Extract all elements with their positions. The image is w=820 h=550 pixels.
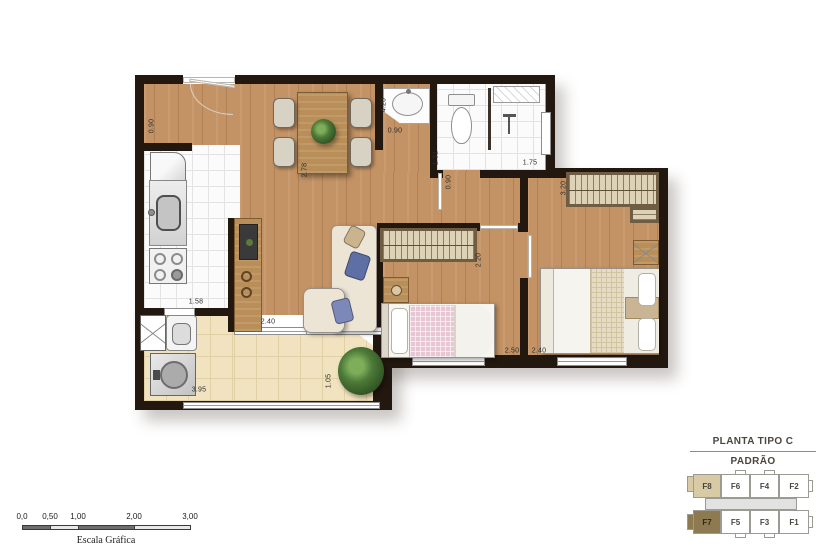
wall-bedroom2-left xyxy=(520,278,528,355)
keyplan-tab xyxy=(808,516,813,528)
window-glass-line xyxy=(184,405,379,406)
building-key-plan: F8 F6 F4 F2 F7 F5 F3 F1 xyxy=(691,474,815,538)
wall-top xyxy=(235,75,555,84)
dim-wardrobe-length: 3.20 xyxy=(561,181,568,195)
bedroom2-wardrobe xyxy=(566,172,659,207)
dim-lavatory-width: 0.90 xyxy=(388,128,402,135)
wall-shower-divider xyxy=(488,88,491,150)
dim-living-width: 2.40 xyxy=(261,319,275,326)
bed-pillow xyxy=(391,308,408,354)
burner-icon xyxy=(154,253,166,265)
dim-balcony-depth: 1.05 xyxy=(326,374,333,388)
dim-entry-width: 0.90 xyxy=(149,119,156,133)
beige-blanket xyxy=(590,269,626,353)
wall-lavatory-left xyxy=(375,84,383,150)
tank-basin xyxy=(172,323,191,345)
bedroom1-window xyxy=(412,357,485,366)
keyplan-tab xyxy=(687,476,694,492)
dim-bathroom-width: 1.31 xyxy=(433,151,440,165)
keyplan-tab xyxy=(764,533,775,538)
service-shaft xyxy=(140,315,166,351)
dim-hall-width: 0.90 xyxy=(446,175,453,189)
laundry-tank-icon xyxy=(166,315,197,351)
bed-duvet xyxy=(454,305,494,357)
scale-tick: 2,00 xyxy=(126,512,142,521)
shower-niche xyxy=(493,86,540,103)
wall-corner xyxy=(518,223,528,232)
unit-f4: F4 xyxy=(750,474,779,498)
washer-panel xyxy=(153,370,160,380)
keyplan-tab xyxy=(735,533,746,538)
bedroom2-wardrobe-extension xyxy=(630,207,659,223)
bedroom1-nightstand xyxy=(383,277,409,303)
wall-right xyxy=(659,168,668,368)
bed-pillow xyxy=(638,318,656,351)
scale-tick: 1,00 xyxy=(70,512,86,521)
double-bed xyxy=(540,268,658,354)
pink-blanket xyxy=(409,305,455,357)
dining-chair xyxy=(273,98,295,128)
dim-kitchen-depth: 2.78 xyxy=(302,163,309,177)
bed-duvet xyxy=(554,269,590,353)
legend-divider xyxy=(690,451,816,452)
bed-foot-fold xyxy=(541,269,554,353)
unit-f2: F2 xyxy=(779,474,809,498)
window-glass-line xyxy=(558,361,626,362)
shower-pipe xyxy=(508,114,510,134)
scale-segment xyxy=(22,525,51,530)
toilet-icon xyxy=(451,107,472,144)
bed-pillow xyxy=(638,273,656,306)
unit-f1: F1 xyxy=(779,510,809,534)
plan-type-title: PLANTA TIPO C xyxy=(688,436,818,447)
window-glass-line xyxy=(413,361,484,362)
dim-bedroom1-width: 2.50 xyxy=(505,348,519,355)
wall-left xyxy=(135,75,144,410)
wall-bathroom-bottom xyxy=(480,170,555,178)
toilet-tank xyxy=(448,94,475,106)
table-plant-icon xyxy=(311,119,336,144)
keyplan-tab xyxy=(764,470,775,475)
tv-stand xyxy=(633,240,659,265)
lamp-icon xyxy=(391,285,402,296)
scale-segment xyxy=(134,525,191,530)
unit-f5: F5 xyxy=(721,510,750,534)
keyplan-tab xyxy=(687,514,694,530)
bathroom-door-leaf xyxy=(438,173,442,210)
dim-kitchen-width: 1.58 xyxy=(189,299,203,306)
kitchen-sink-basin xyxy=(156,195,181,231)
dim-shower-width: 1.75 xyxy=(523,160,537,167)
faucet-icon xyxy=(148,209,155,216)
scale-tick: 0,0 xyxy=(16,512,27,521)
bedroom1-door-leaf xyxy=(480,225,518,229)
bathroom-vent-window xyxy=(541,112,551,155)
dim-bedroom2-width: 2.40 xyxy=(532,348,546,355)
unit-f8: F8 xyxy=(693,474,721,498)
apartment-floorplan: 0.90 2.78 4.20 0.90 1.31 1.75 0.90 3.20 … xyxy=(135,75,668,410)
plan-standard-subtitle: PADRÃO xyxy=(688,456,818,467)
wall-top xyxy=(135,75,183,84)
keyplan-tab xyxy=(735,470,746,475)
scale-tick: 0,50 xyxy=(42,512,58,521)
dim-dining-depth: 4.20 xyxy=(381,98,388,112)
legend-panel: PLANTA TIPO C PADRÃO F8 F6 F4 F2 F7 F5 F… xyxy=(688,436,818,538)
cooktop-burner-icon xyxy=(241,287,252,298)
burner-icon xyxy=(171,269,183,281)
scale-segment xyxy=(50,525,79,530)
wall-bedroom2-left xyxy=(520,178,528,223)
cooktop-burner-icon xyxy=(241,271,252,282)
countertop-appliance xyxy=(239,224,258,260)
kitchen-sink-counter xyxy=(149,180,187,246)
balcony-window xyxy=(183,402,380,409)
unit-f7: F7 xyxy=(693,510,721,534)
dim-balcony-width: 3.95 xyxy=(192,387,206,394)
dim-bedroom1-wardrobe: 2.20 xyxy=(476,253,483,267)
keyplan-tab xyxy=(808,480,813,492)
bedroom2-window xyxy=(557,357,627,366)
keyplan-corridor xyxy=(705,498,797,510)
stove-icon xyxy=(149,248,187,284)
bed-headboard xyxy=(382,304,389,357)
dining-chair xyxy=(273,137,295,167)
scale-caption: Escala Gráfica xyxy=(22,535,190,546)
dining-chair xyxy=(350,137,372,167)
washer-drum xyxy=(160,361,188,389)
balcony-plant-icon xyxy=(338,347,384,395)
dining-chair xyxy=(350,98,372,128)
bedroom1-wardrobe xyxy=(380,228,477,262)
unit-f3: F3 xyxy=(750,510,779,534)
burner-icon xyxy=(154,269,166,281)
floorplan-page: { "plan": { "dimensions": [ {"id": "entr… xyxy=(0,0,820,550)
single-bed xyxy=(381,303,495,358)
knob-icon xyxy=(246,239,253,246)
kitchen-peninsula-counter xyxy=(234,218,262,332)
faucet-icon xyxy=(406,89,411,94)
scale-tick: 3,00 xyxy=(182,512,198,521)
unit-f6: F6 xyxy=(721,474,750,498)
scale-segment xyxy=(78,525,135,530)
washing-machine-icon xyxy=(150,353,196,396)
washbasin-icon xyxy=(392,92,423,116)
burner-icon xyxy=(171,253,183,265)
bedroom2-door-leaf xyxy=(528,235,532,278)
wall-entry-stub xyxy=(144,143,192,151)
